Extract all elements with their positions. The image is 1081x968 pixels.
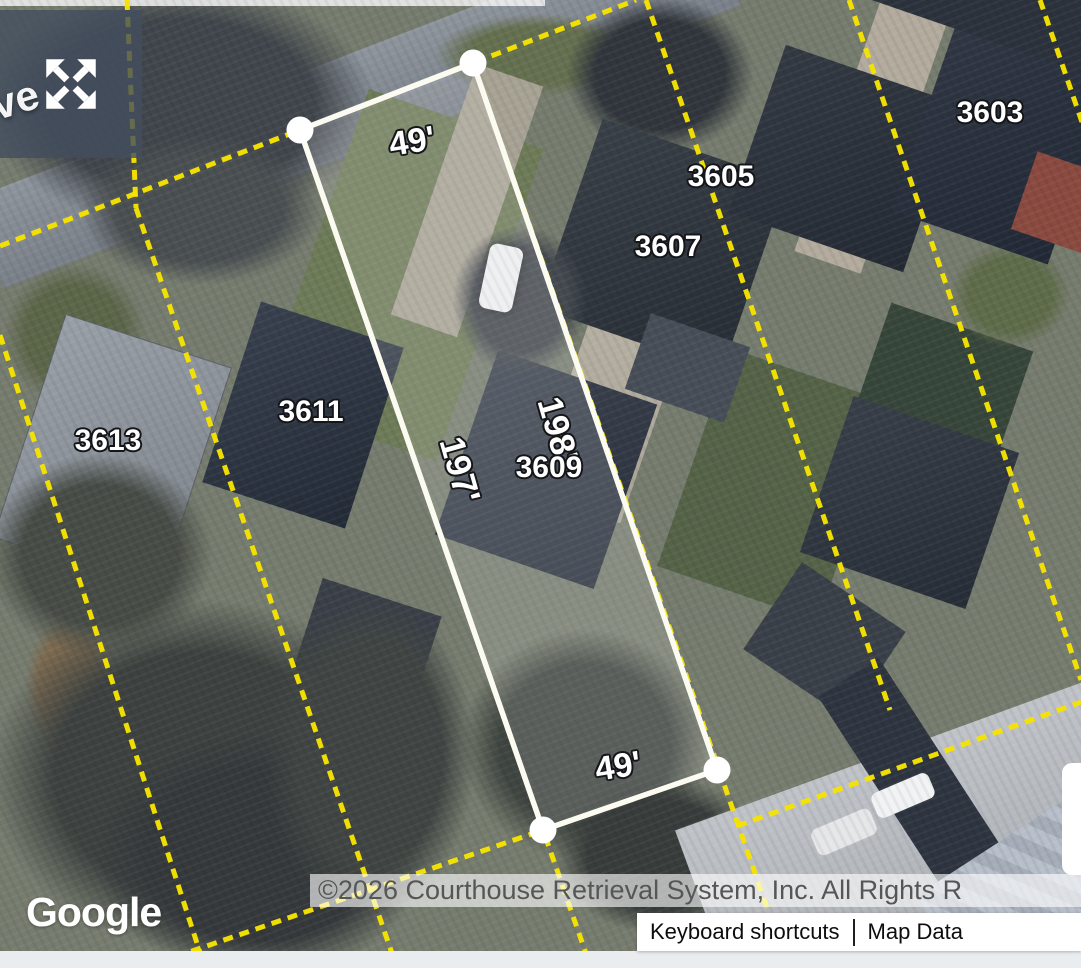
parcel-dimension-bottom: 49' — [592, 744, 643, 790]
side-panel-edge[interactable] — [1062, 763, 1081, 875]
house-number-label: 3613 — [75, 424, 142, 458]
house-number-label: 3611 — [278, 395, 343, 429]
house-number-label: 3609 — [516, 451, 583, 485]
house-number-label: 3607 — [635, 230, 702, 264]
expand-arrows-icon — [38, 51, 104, 117]
lot-line — [646, 0, 890, 710]
lot-line — [136, 208, 397, 968]
page-bottom-strip — [0, 951, 1081, 968]
parcel-dimension-top: 49' — [386, 119, 437, 165]
map-footer-bar: Keyboard shortcuts Map Data — [637, 913, 1081, 951]
house-number-label: 3605 — [688, 160, 755, 194]
highlighted-parcel-outline — [300, 63, 717, 830]
parcel-corner-marker[interactable] — [460, 50, 487, 77]
copyright-attribution: ©2026 Courthouse Retrieval System, Inc. … — [310, 874, 1081, 907]
parcel-corner-marker[interactable] — [287, 117, 314, 144]
google-logo[interactable]: Google — [26, 889, 161, 936]
lot-line — [1040, 0, 1081, 125]
satellite-map-view[interactable]: 49' 197' 198' 49' 3613 3611 3609 3607 36… — [0, 0, 1081, 968]
house-number-label: 3603 — [957, 96, 1024, 130]
map-data-button[interactable]: Map Data — [855, 919, 976, 945]
parcel-corner-marker[interactable] — [530, 817, 557, 844]
rear-lot-line — [737, 702, 1081, 826]
copyright-text: ©2026 Courthouse Retrieval System, Inc. … — [310, 874, 1081, 907]
parcel-corner-marker[interactable] — [704, 757, 731, 784]
keyboard-shortcuts-button[interactable]: Keyboard shortcuts — [637, 919, 853, 945]
